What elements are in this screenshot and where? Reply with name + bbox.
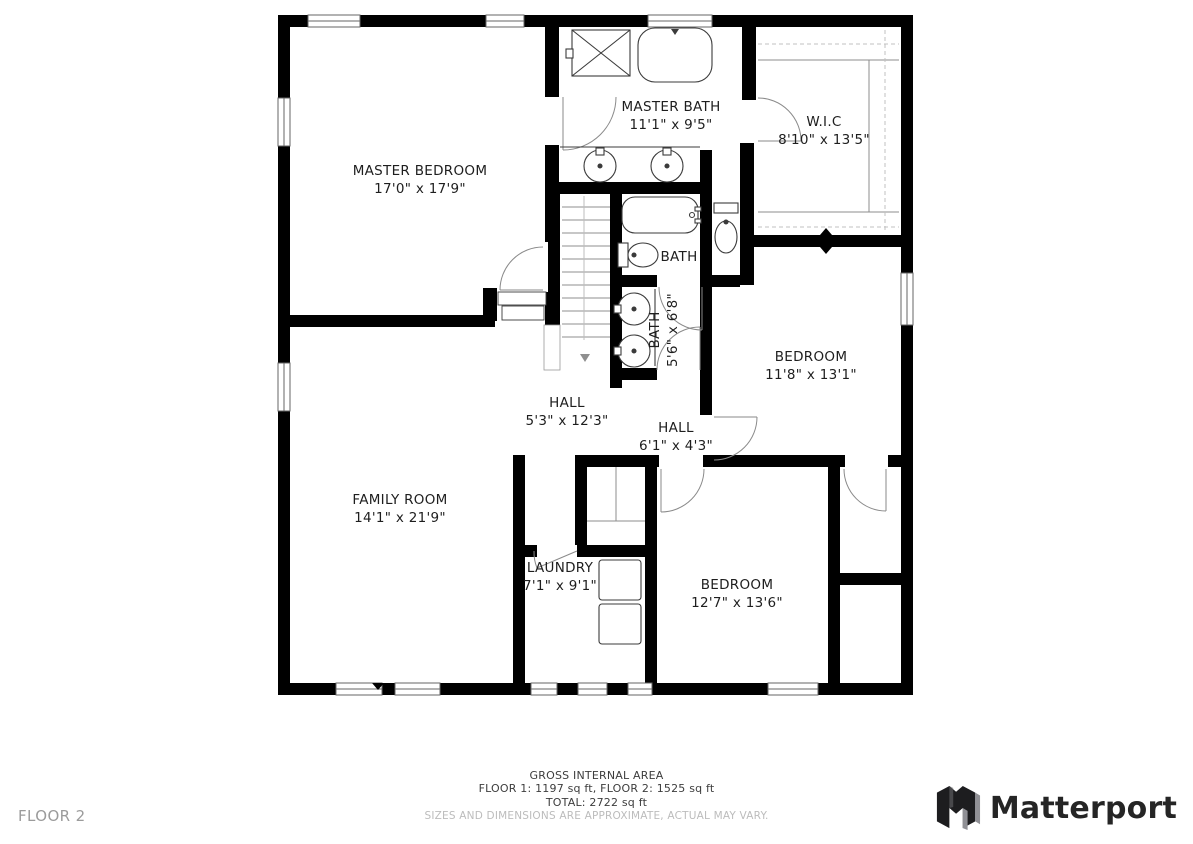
door-closet — [844, 469, 886, 511]
svg-text:FAMILY ROOM: FAMILY ROOM — [352, 492, 447, 508]
shower — [566, 30, 630, 76]
matterport-wordmark: Matterport — [990, 791, 1177, 826]
room-label-hall-1: HALL 5'3" x 12'3" — [526, 395, 609, 429]
svg-text:LAUNDRY: LAUNDRY — [527, 560, 594, 576]
bathtub-master — [638, 28, 712, 82]
door-master-bedroom — [500, 247, 543, 290]
vanity-master — [560, 147, 700, 182]
svg-text:11'8" x 13'1": 11'8" x 13'1" — [765, 367, 857, 383]
floorplan-page: MASTER BEDROOM 17'0" x 17'9" MASTER BATH… — [0, 0, 1193, 844]
bathtub-bath — [622, 197, 701, 233]
svg-text:BATH: BATH — [647, 311, 663, 348]
door-bedroom-2 — [661, 469, 704, 512]
stair-opening — [544, 325, 560, 370]
matterport-brand: Matterport — [935, 784, 1177, 832]
svg-text:5'6" x 6'8": 5'6" x 6'8" — [665, 293, 681, 367]
room-label-bath-2: BATH 5'6" x 6'8" — [647, 293, 681, 367]
floor-label: FLOOR 2 — [18, 807, 86, 825]
toilet-wc — [714, 203, 738, 253]
matterport-logo-icon — [935, 784, 981, 832]
svg-text:W.I.C: W.I.C — [806, 114, 841, 130]
room-label-hall-2: HALL 6'1" x 4'3" — [639, 420, 713, 454]
gross-internal-area-title: GROSS INTERNAL AREA — [0, 769, 1193, 782]
room-label-bath: BATH — [660, 249, 697, 265]
svg-text:MASTER BATH: MASTER BATH — [621, 99, 720, 115]
room-label-wic: W.I.C 8'10" x 13'5" — [778, 114, 870, 148]
svg-text:6'1" x 4'3": 6'1" x 4'3" — [639, 438, 713, 454]
stairs-direction-arrow — [580, 354, 590, 362]
svg-text:MASTER BEDROOM: MASTER BEDROOM — [353, 163, 488, 179]
door-bedroom-1 — [714, 417, 757, 460]
room-label-laundry: LAUNDRY 7'1" x 9'1" — [523, 560, 597, 594]
svg-text:HALL: HALL — [658, 420, 694, 436]
svg-text:17'0" x 17'9": 17'0" x 17'9" — [374, 181, 466, 197]
room-label-master-bedroom: MASTER BEDROOM 17'0" x 17'9" — [353, 163, 488, 197]
svg-text:8'10" x 13'5": 8'10" x 13'5" — [778, 132, 870, 148]
svg-text:5'3" x 12'3": 5'3" x 12'3" — [526, 413, 609, 429]
svg-text:11'1" x 9'5": 11'1" x 9'5" — [630, 117, 713, 133]
svg-text:BEDROOM: BEDROOM — [701, 577, 774, 593]
room-label-bedroom-2: BEDROOM 12'7" x 13'6" — [691, 577, 783, 611]
svg-text:12'7" x 13'6": 12'7" x 13'6" — [691, 595, 783, 611]
svg-text:14'1" x 21'9": 14'1" x 21'9" — [354, 510, 446, 526]
toilet-bath — [618, 243, 658, 267]
door-master-bath — [563, 97, 616, 150]
room-label-master-bath: MASTER BATH 11'1" x 9'5" — [621, 99, 720, 133]
washer-dryer — [599, 560, 641, 644]
svg-text:BEDROOM: BEDROOM — [775, 349, 848, 365]
room-label-bedroom-1: BEDROOM 11'8" x 13'1" — [765, 349, 857, 383]
svg-text:7'1" x 9'1": 7'1" x 9'1" — [523, 578, 597, 594]
room-label-family-room: FAMILY ROOM 14'1" x 21'9" — [352, 492, 447, 526]
svg-text:BATH: BATH — [660, 249, 697, 265]
floorplan-canvas: MASTER BEDROOM 17'0" x 17'9" MASTER BATH… — [0, 0, 1193, 844]
linen-shelf — [498, 292, 546, 320]
svg-text:HALL: HALL — [549, 395, 585, 411]
